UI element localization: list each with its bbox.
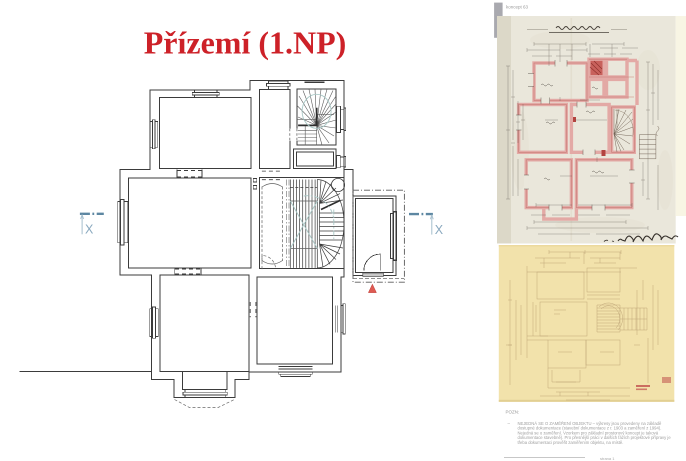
svg-text:Přízemí (1.NP): Přízemí (1.NP) — [144, 25, 347, 61]
svg-text:třeba dokumentaci prověřit zam: třeba dokumentaci prověřit zaměřením obj… — [518, 440, 624, 445]
svg-text:koncept 63: koncept 63 — [506, 5, 529, 10]
svg-text:X: X — [435, 223, 444, 237]
svg-text:X: X — [85, 223, 94, 237]
svg-text:strana 1: strana 1 — [600, 456, 615, 461]
svg-text:POZN:: POZN: — [506, 409, 520, 414]
